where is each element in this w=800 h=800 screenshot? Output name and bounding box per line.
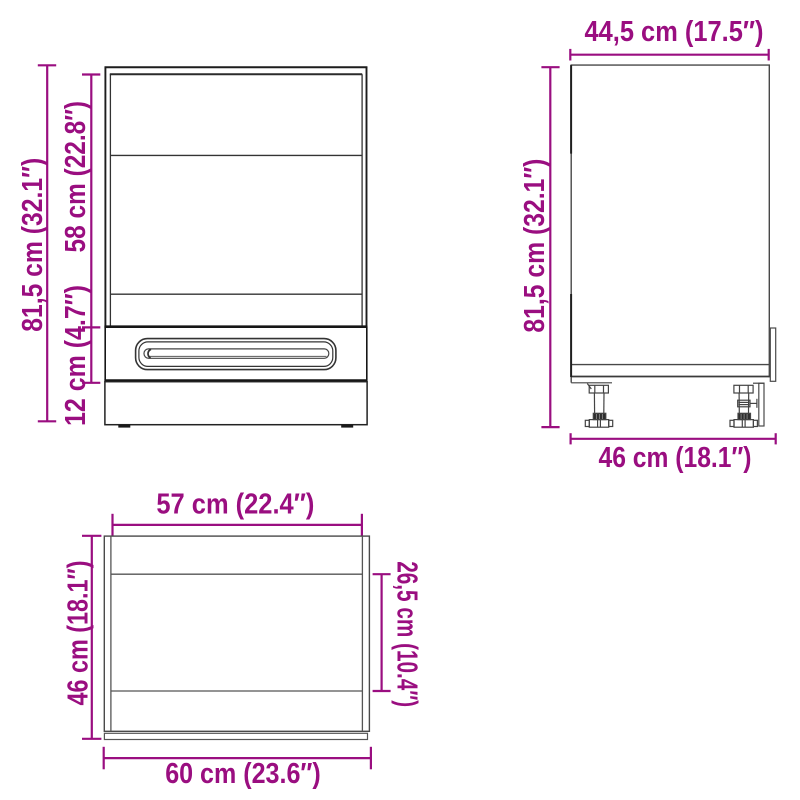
svg-text:81,5 cm (32.1″): 81,5 cm (32.1″) xyxy=(17,158,49,332)
svg-text:44,5 cm (17.5″): 44,5 cm (17.5″) xyxy=(585,16,764,48)
svg-text:26,5 cm (10.4″): 26,5 cm (10.4″) xyxy=(391,561,423,707)
svg-text:81,5 cm (32.1″): 81,5 cm (32.1″) xyxy=(519,159,551,333)
svg-text:46 cm (18.1″): 46 cm (18.1″) xyxy=(62,561,94,706)
svg-text:58 cm (22.8″): 58 cm (22.8″) xyxy=(60,101,92,253)
svg-text:12 cm (4.7″): 12 cm (4.7″) xyxy=(60,285,92,426)
svg-text:46 cm (18.1″): 46 cm (18.1″) xyxy=(599,442,752,474)
svg-text:57 cm (22.4″): 57 cm (22.4″) xyxy=(156,488,314,520)
svg-text:60 cm (23.6″): 60 cm (23.6″) xyxy=(165,758,321,790)
